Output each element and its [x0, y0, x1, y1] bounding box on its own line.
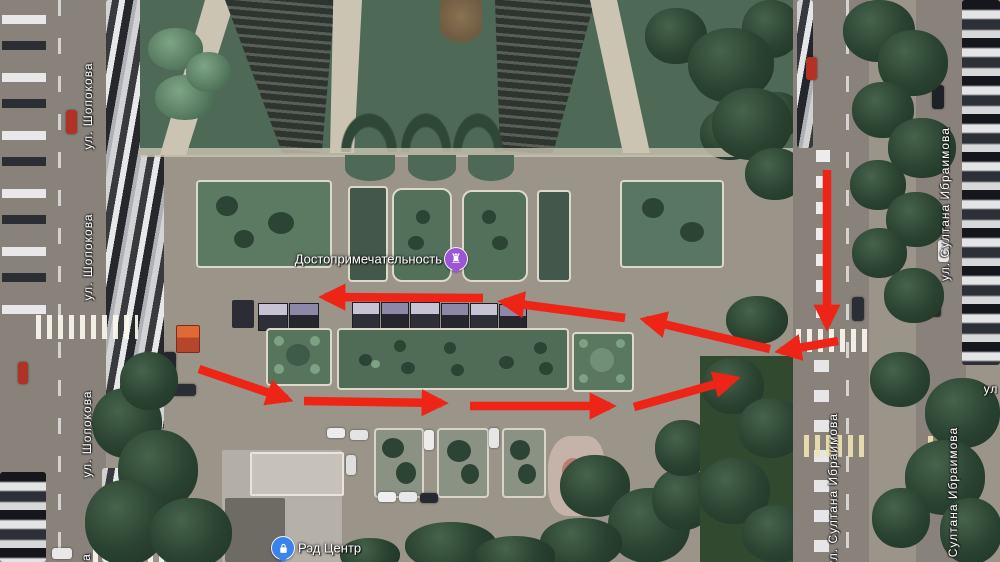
route-arrow — [325, 297, 483, 298]
route-arrow — [646, 320, 770, 349]
street-label: Султана Ибраимова — [946, 427, 960, 557]
route-arrow — [781, 341, 838, 351]
route-arrow — [199, 369, 287, 399]
route-arrows-overlay — [0, 0, 1000, 562]
marker-pointer — [278, 557, 288, 562]
poi-marker-red-center[interactable] — [271, 536, 295, 560]
street-label: ул. Шопокова — [80, 390, 94, 477]
monument-glyph: ♜ — [450, 253, 462, 266]
street-label: ул — [984, 382, 999, 396]
street-label: ул. Султана Ибраимова — [826, 413, 840, 562]
street-label: ул. Шопокова — [81, 62, 95, 149]
route-arrow — [634, 379, 734, 407]
street-label: ул. Шопокова — [81, 213, 95, 300]
route-arrow — [304, 401, 442, 403]
street-label: а — [79, 553, 93, 561]
poi-marker-attraction[interactable]: ♜ — [444, 247, 468, 271]
route-arrow — [504, 302, 625, 318]
street-label: ул. Султана Ибраимова — [938, 127, 952, 281]
satellite-map[interactable]: ул. Шопоковаул. Шопоковаул. Шопоковааул.… — [0, 0, 1000, 562]
poi-label-red-center[interactable]: Рэд Центр — [298, 541, 361, 556]
marker-pointer — [451, 268, 461, 274]
shopping-bag-glyph — [277, 542, 290, 555]
poi-label-attraction[interactable]: Достопримечательность — [295, 252, 442, 267]
